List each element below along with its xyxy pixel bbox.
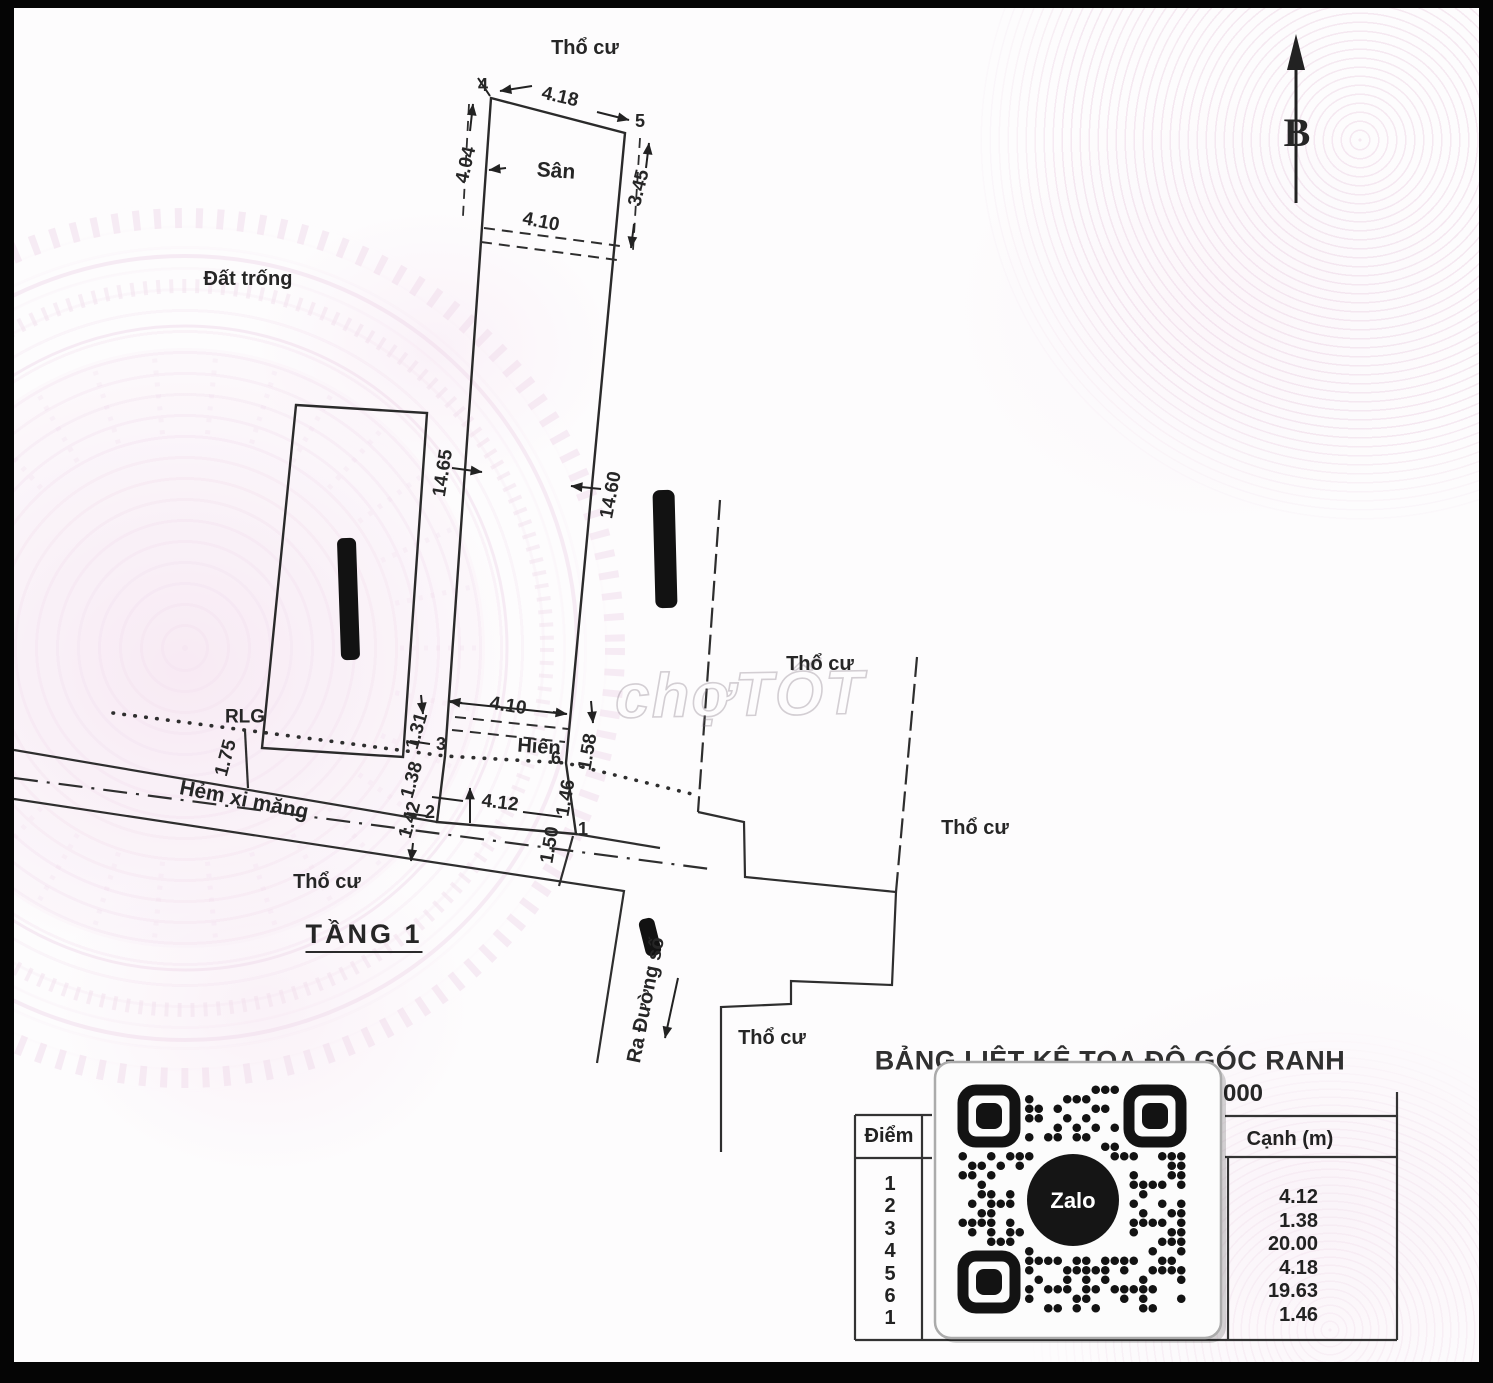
survey-paper: chợTỐT BẢNG LIỆT KÊ TỌA ĐỘ GÓC RANH 000 … <box>14 8 1479 1362</box>
zalo-logo-label: Zalo <box>1050 1188 1095 1213</box>
scanned-document-frame: chợTỐT BẢNG LIỆT KÊ TỌA ĐỘ GÓC RANH 000 … <box>0 0 1493 1383</box>
drawing-layer: chợTỐT BẢNG LIỆT KÊ TỌA ĐỘ GÓC RANH 000 … <box>14 8 1479 1362</box>
qr-code-overlay: Zalo <box>14 8 1479 1362</box>
